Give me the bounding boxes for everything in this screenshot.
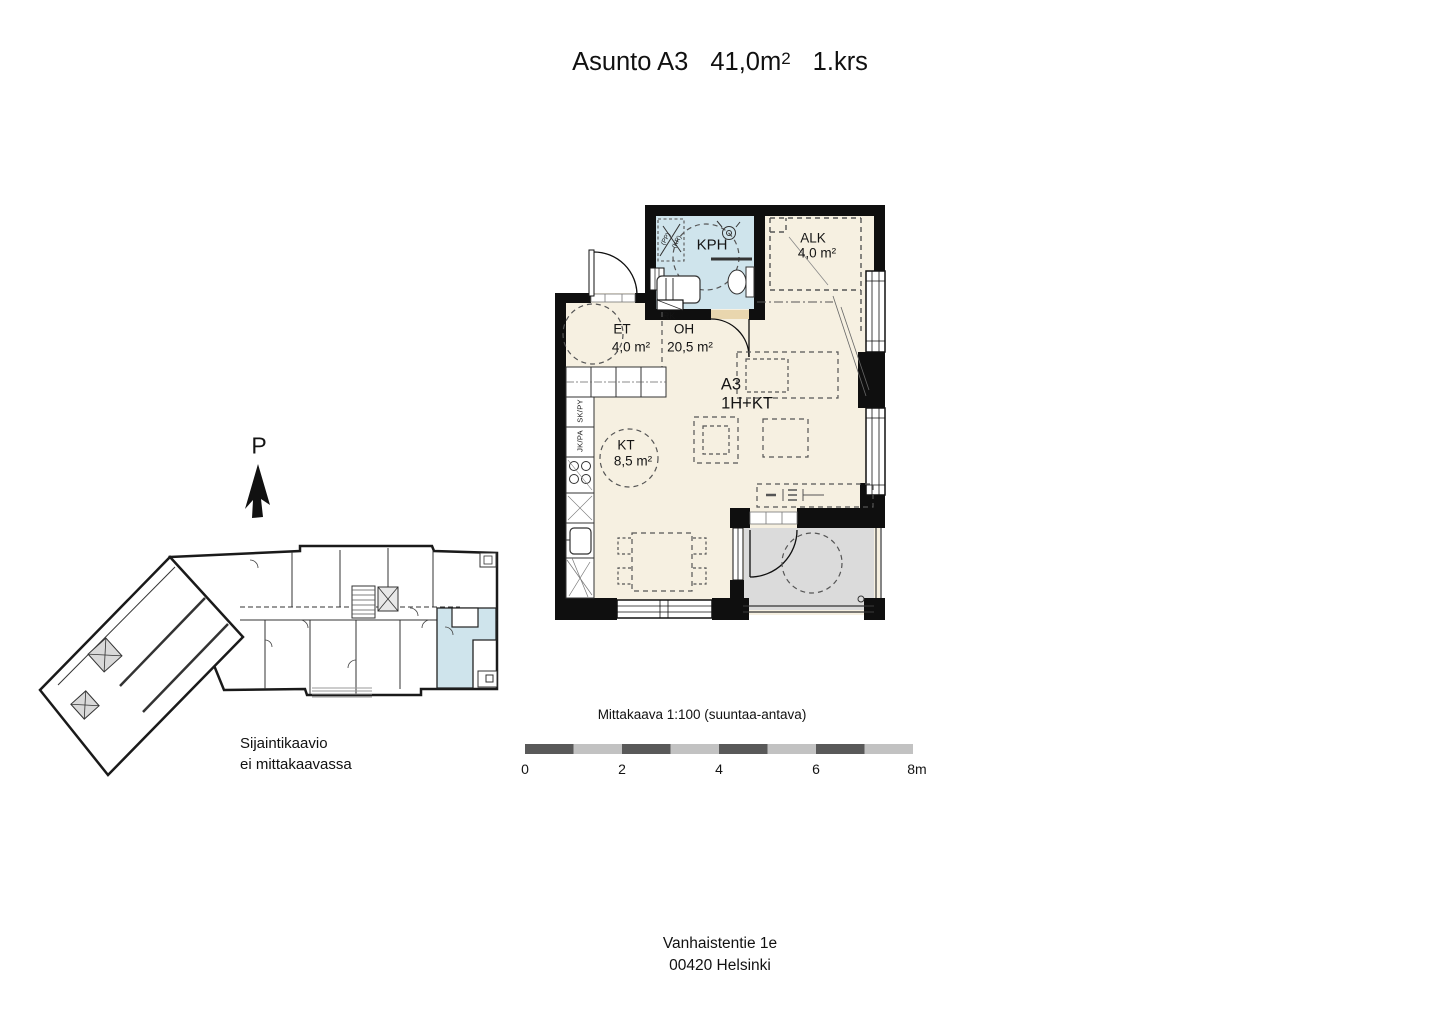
apartment-type: 1H+KT xyxy=(721,395,773,414)
annotation-pp: (PP) xyxy=(660,232,672,247)
north-arrow-label: P xyxy=(251,433,266,460)
annotation-rk: RK xyxy=(663,311,676,321)
address-line2: 00420 Helsinki xyxy=(663,955,777,977)
title-apartment: Asunto A3 xyxy=(572,48,688,76)
text-overlay: Asunto A341,0m21.krs P KPH ALK 4,0 m² ET… xyxy=(0,0,1440,1018)
room-area-alk: 4,0 m² xyxy=(798,246,836,261)
address: Vanhaistentie 1e 00420 Helsinki xyxy=(663,933,777,977)
scale-tick-2: 2 xyxy=(618,761,626,777)
scale-tick-6: 6 xyxy=(812,761,820,777)
scale-bar-title: Mittakaava 1:100 (suuntaa-antava) xyxy=(598,707,807,722)
title-area: 41,0m xyxy=(710,48,781,76)
title-floor: 1.krs xyxy=(813,48,868,76)
room-area-kt: 8,5 m² xyxy=(614,454,652,469)
room-label-oh: OH xyxy=(674,322,694,337)
room-label-et: ET xyxy=(613,322,630,337)
room-label-alk: ALK xyxy=(800,231,826,246)
scale-tick-4: 4 xyxy=(715,761,723,777)
page-title: Asunto A341,0m21.krs xyxy=(0,48,1440,77)
title-area-sup: 2 xyxy=(781,49,790,68)
annotation-jk-pa: JK/PA xyxy=(576,430,585,452)
room-area-et: 4,0 m² xyxy=(612,340,650,355)
annotation-sk-py: SK/PY xyxy=(576,399,585,423)
site-caption-line2: ei mittakaavassa xyxy=(240,754,352,775)
scale-tick-8m: 8m xyxy=(907,761,926,777)
room-area-oh: 20,5 m² xyxy=(667,340,713,355)
site-plan-caption: Sijaintikaavio ei mittakaavassa xyxy=(240,733,352,775)
annotation-kr: (KR) xyxy=(671,234,683,249)
room-label-kph: KPH xyxy=(697,237,728,254)
address-line1: Vanhaistentie 1e xyxy=(663,933,777,955)
room-label-kt: KT xyxy=(617,438,634,453)
scale-tick-0: 0 xyxy=(521,761,529,777)
apartment-code: A3 xyxy=(721,376,741,395)
site-caption-line1: Sijaintikaavio xyxy=(240,733,352,754)
